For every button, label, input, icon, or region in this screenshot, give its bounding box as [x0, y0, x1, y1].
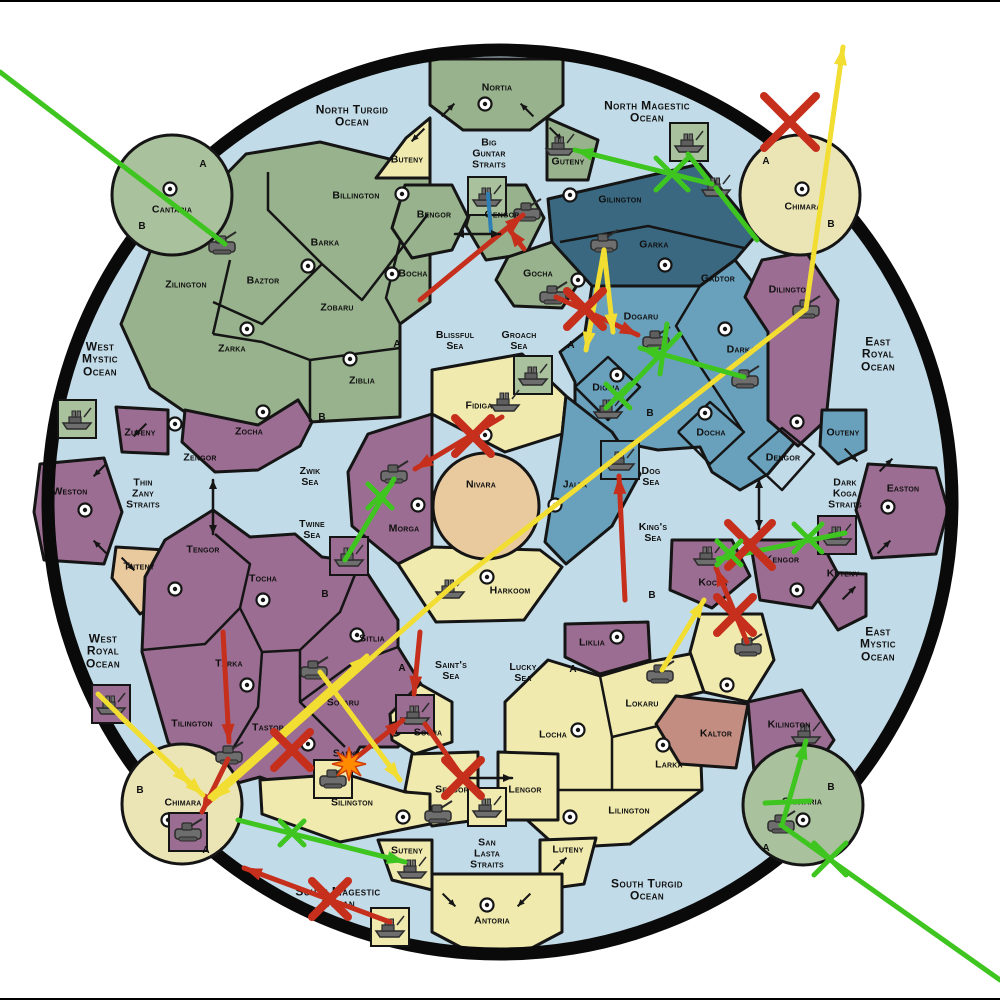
supply-center-dot [791, 416, 804, 429]
supply-center-dot [169, 418, 182, 431]
supply-center-dot [241, 323, 254, 336]
province-nivara[interactable] [433, 453, 539, 559]
supply-center-dot [721, 679, 734, 692]
province-cantaria-southeast[interactable] [743, 745, 863, 865]
army-unit[interactable] [169, 813, 207, 851]
supply-center-dot [479, 98, 492, 111]
supply-center-dot [344, 353, 357, 366]
fleet-unit[interactable] [92, 685, 130, 723]
fleet-unit[interactable] [514, 356, 552, 394]
supply-center-dot [719, 323, 732, 336]
supply-center-dot [572, 274, 585, 287]
fleet-unit[interactable] [670, 123, 708, 161]
supply-center-dot [164, 183, 177, 196]
army-unit[interactable] [314, 760, 352, 798]
supply-center-dot [611, 631, 624, 644]
fleet-unit[interactable] [601, 441, 639, 479]
supply-center-dot [79, 504, 92, 517]
fleet-unit[interactable] [371, 908, 409, 946]
province-antoria[interactable] [432, 874, 562, 950]
supply-center-dot [572, 724, 585, 737]
supply-center-dot [302, 260, 315, 273]
world-map: NortiaButenyGutenyBig Guntar StraitsNort… [0, 0, 1000, 1000]
supply-center-dot [481, 899, 494, 912]
supply-center-dot [302, 738, 315, 751]
supply-center-dot [257, 406, 270, 419]
supply-center-dot [351, 629, 364, 642]
supply-center-dot [564, 811, 577, 824]
map-canvas [0, 2, 1000, 1000]
fleet-unit[interactable] [468, 788, 506, 826]
fleet-unit[interactable] [58, 400, 96, 438]
supply-center-dot [169, 583, 182, 596]
supply-center-dot [659, 259, 672, 272]
province-zuteny[interactable] [116, 407, 168, 454]
supply-center-dot [479, 429, 492, 442]
supply-center-dot [412, 499, 425, 512]
fleet-unit[interactable] [468, 177, 506, 215]
supply-center-dot [699, 407, 712, 420]
province-easton[interactable] [856, 464, 948, 558]
supply-center-dot [791, 584, 804, 597]
supply-center-dot [241, 679, 254, 692]
supply-center-dot [481, 571, 494, 584]
supply-center-dot [611, 369, 624, 382]
supply-center-dot [257, 594, 270, 607]
supply-center-dot [657, 739, 670, 752]
fleet-unit[interactable] [396, 695, 434, 733]
province-nortia[interactable] [430, 59, 563, 130]
supply-center-dot [397, 811, 410, 824]
supply-center-dot [564, 189, 577, 202]
supply-center-dot [386, 268, 399, 281]
supply-center-dot [396, 188, 409, 201]
fleet-unit[interactable] [330, 537, 368, 575]
supply-center-dot [797, 814, 810, 827]
supply-center-dot [882, 501, 895, 514]
fleet-unit[interactable] [818, 516, 856, 554]
supply-center-dot [549, 499, 562, 512]
supply-center-dot [796, 183, 809, 196]
